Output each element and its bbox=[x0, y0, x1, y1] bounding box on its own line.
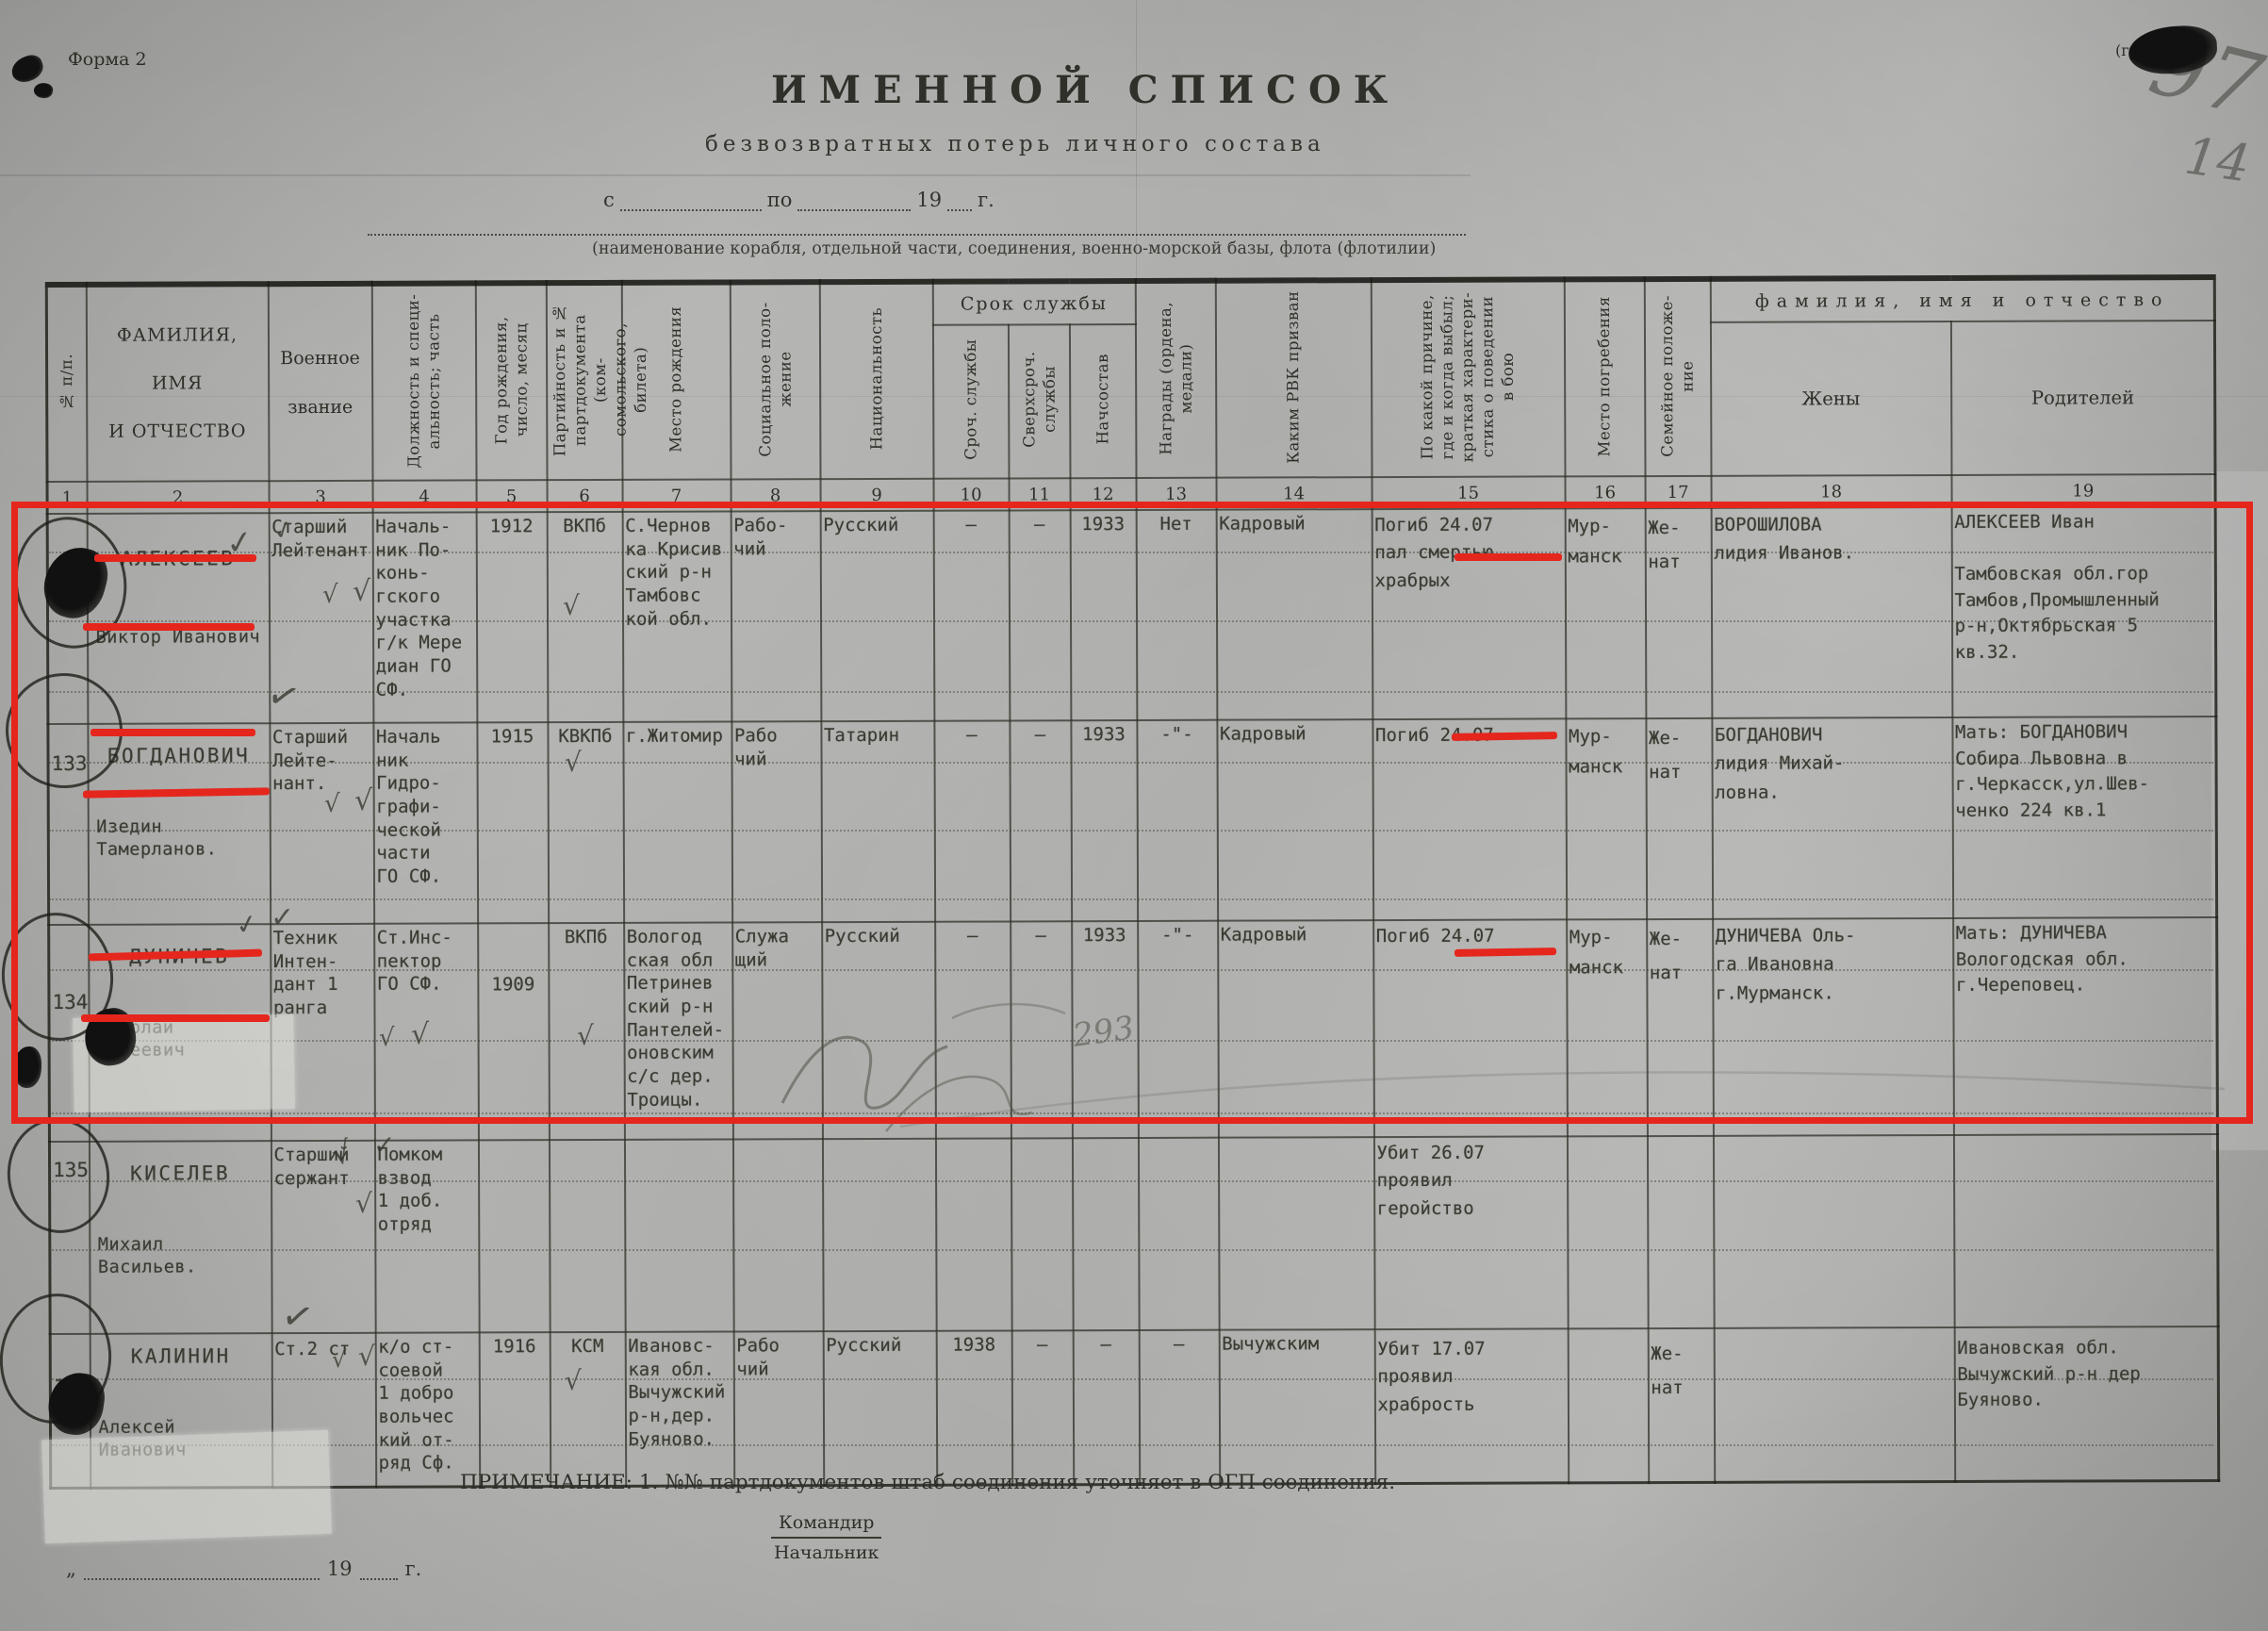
cell-wife: БОГДАНОВИЧ лидия Михай- ловна. bbox=[1712, 717, 1953, 919]
footer-year-blank bbox=[360, 1561, 398, 1580]
header-row-number: № п/п. bbox=[46, 285, 87, 482]
column-number: 3 bbox=[269, 481, 372, 513]
checkmark: √ bbox=[358, 1341, 375, 1372]
cell-burial bbox=[1567, 1136, 1648, 1328]
table-row: 136КАЛИНИНАлексей ИвановичСт.2 стк/о ст-… bbox=[50, 1326, 2219, 1488]
cell-name: КИСЕЛЕВМихаил Васильев. bbox=[89, 1141, 271, 1334]
cell-fate: Погиб 24.07 пал смертью храбрых bbox=[1372, 508, 1566, 719]
column-number: 2 bbox=[87, 481, 269, 514]
date-from-blank bbox=[620, 192, 762, 211]
cell-parents: Ивановская обл. Вычужский р-н дер Буянов… bbox=[1954, 1326, 2219, 1481]
cell-burial: Мур- манск bbox=[1566, 718, 1647, 919]
cell-nation: Русский bbox=[823, 1331, 937, 1485]
column-number: 15 bbox=[1372, 476, 1565, 509]
header-term-officer: Начсостав bbox=[1069, 324, 1136, 478]
cell-fate: Убит 26.07 проявил геройство bbox=[1373, 1136, 1568, 1329]
column-number: 5 bbox=[476, 480, 547, 512]
red-underline bbox=[81, 1014, 270, 1022]
header-social: Социальное поло- жение bbox=[730, 282, 820, 479]
cell-party: КВКПб bbox=[548, 722, 624, 923]
checkmark: √ bbox=[324, 790, 340, 818]
cell-family: Же- нат bbox=[1646, 718, 1713, 919]
footer-year-suffix: г. bbox=[405, 1557, 422, 1580]
ink-blot bbox=[13, 1046, 41, 1088]
cell-c10: 1938 bbox=[936, 1330, 1012, 1484]
unit-caption: (наименование корабля, отдельной части, … bbox=[592, 239, 1436, 258]
header-term-extended: Сверхсроч. службы bbox=[1008, 324, 1070, 478]
cell-fate: Погиб 24.07 bbox=[1372, 718, 1567, 920]
dotted-guide-line bbox=[49, 1444, 2213, 1446]
table-row: 135КИСЕЛЕВМихаил Васильев.Старший сержан… bbox=[49, 1134, 2218, 1334]
checkmark: √ bbox=[565, 747, 582, 778]
cell-wife: ВОРОШИЛОВА лидия Иванов. bbox=[1711, 507, 1952, 718]
unit-name-blank-line bbox=[368, 234, 1466, 236]
cell-year bbox=[478, 1140, 550, 1332]
surname: КИСЕЛЕВ bbox=[92, 1161, 269, 1187]
cell-fate: Убит 17.07 проявил храбрость bbox=[1374, 1328, 1569, 1483]
dotted-guide-line bbox=[49, 898, 2213, 900]
column-number: 12 bbox=[1070, 478, 1136, 510]
form-number-label: Форма 2 bbox=[68, 49, 147, 70]
cell-awards: – bbox=[1139, 1330, 1220, 1484]
column-number: 19 bbox=[1951, 474, 2215, 507]
given-name: Изедин Тамерланов. bbox=[90, 816, 267, 863]
signature-commander: Командир bbox=[771, 1512, 881, 1539]
dotted-guide-line bbox=[49, 830, 2213, 832]
checkmark: √ bbox=[354, 784, 372, 817]
column-number: 8 bbox=[731, 479, 820, 511]
column-number: 16 bbox=[1565, 476, 1645, 508]
red-underline bbox=[1454, 553, 1562, 561]
header-burial: Место погребения bbox=[1564, 279, 1645, 476]
cell-c12: 1933 bbox=[1071, 720, 1138, 921]
cell-birthplace bbox=[624, 1139, 733, 1331]
column-number: 11 bbox=[1009, 478, 1070, 510]
header-duty: Должность и специ- альность; часть bbox=[371, 283, 476, 480]
column-number: 6 bbox=[547, 480, 622, 512]
cell-awards bbox=[1138, 1138, 1219, 1330]
date-range-line: спо19г. bbox=[603, 189, 994, 211]
cell-burial bbox=[1568, 1328, 1649, 1482]
header-parents: Родителей bbox=[1950, 321, 2215, 475]
cell-social: Рабо чий bbox=[733, 1331, 824, 1485]
header-birth-year: Год рождения, число, месяц bbox=[475, 283, 547, 480]
footer-date-line: „19г. bbox=[66, 1557, 421, 1580]
cell-c10: – bbox=[933, 510, 1010, 720]
cell-family: Же- нат bbox=[1645, 508, 1712, 718]
cell-wife bbox=[1713, 1135, 1954, 1328]
header-wife: Жены bbox=[1710, 321, 1951, 476]
cell-awards: Нет bbox=[1136, 510, 1217, 720]
cell-parents: Мать: БОГДАНОВИЧ Собира Львовна в г.Черк… bbox=[1952, 717, 2217, 918]
column-number: 7 bbox=[622, 479, 731, 511]
column-number: 4 bbox=[372, 480, 476, 512]
date-year-label: 19 bbox=[916, 189, 942, 211]
document-page: Форма 2 (гриф) 97 14 ИМЕННОЙ СПИСОК безв… bbox=[0, 0, 2268, 1631]
document-title: ИМЕННОЙ СПИСОК bbox=[771, 68, 1082, 112]
cell-c11: – bbox=[1010, 720, 1072, 921]
cell-party bbox=[549, 1140, 625, 1332]
footnote: ПРИМЕЧАНИЕ: 1. №№ партдокументов штаб со… bbox=[460, 1471, 1395, 1494]
dotted-guide-line bbox=[49, 691, 2213, 693]
column-number: 1 bbox=[47, 482, 87, 514]
cell-social: Рабо чий bbox=[731, 721, 822, 922]
column-number: 10 bbox=[933, 478, 1009, 510]
header-family-status: Семейное положе- ние bbox=[1644, 279, 1711, 476]
checkmark: √ bbox=[411, 1018, 429, 1051]
cell-wife bbox=[1714, 1327, 1955, 1482]
cell-duty: к/о ст- соевой 1 добро вольчес кий от- р… bbox=[375, 1332, 480, 1486]
date-to-blank bbox=[797, 192, 911, 211]
surname: КАЛИНИН bbox=[92, 1343, 269, 1370]
paper-crease bbox=[0, 174, 1471, 176]
date-year-suffix: г. bbox=[978, 189, 994, 211]
checkmark: √ bbox=[322, 581, 338, 609]
date-from-label: с bbox=[603, 189, 615, 211]
checkmark: √ bbox=[355, 1188, 372, 1219]
cell-rvk bbox=[1218, 1137, 1374, 1330]
cell-awards: -"- bbox=[1137, 720, 1218, 921]
dotted-guide-line bbox=[49, 1180, 2213, 1182]
cell-rvk: Кадровый bbox=[1216, 509, 1372, 720]
date-year-blank bbox=[947, 192, 972, 211]
red-underline bbox=[83, 623, 255, 631]
cell-family: Же- нат bbox=[1648, 1328, 1715, 1482]
loss-list-table: № п/п. ФАМИЛИЯ, ИМЯ И ОТЧЕСТВО Военное з… bbox=[45, 274, 2220, 1490]
date-to-label: по bbox=[767, 189, 793, 211]
red-underline bbox=[90, 729, 255, 736]
checkmark: √ bbox=[332, 1346, 346, 1373]
cell-family bbox=[1647, 1136, 1714, 1328]
cell-birthplace: Ивановс- кая обл. Вычужский р-н,дер. Буя… bbox=[625, 1331, 734, 1485]
checkmark: √ bbox=[565, 1365, 582, 1396]
header-rank: Военное звание bbox=[268, 284, 372, 481]
cell-rank: Старший Лейте- нант. bbox=[270, 723, 374, 924]
cell-year: 1915 bbox=[477, 722, 549, 923]
cell-social: Рабо- чий bbox=[731, 511, 821, 721]
signature-chief: Начальник bbox=[771, 1539, 881, 1563]
checkmark: ✓ bbox=[373, 1129, 395, 1161]
cell-birthplace: г.Житомир bbox=[623, 721, 732, 922]
table-header: № п/п. ФАМИЛИЯ, ИМЯ И ОТЧЕСТВО Военное з… bbox=[46, 277, 2215, 514]
header-awards: Награды (ордена, медали) bbox=[1135, 281, 1216, 478]
cell-party: КСМ bbox=[550, 1332, 626, 1486]
faint-pencil-curve bbox=[896, 1037, 2234, 1141]
cell-c12: 1933 bbox=[1070, 510, 1137, 720]
cell-nation: Татарин bbox=[821, 721, 935, 922]
checkmark: √ bbox=[563, 590, 580, 621]
footer-open-quote: „ bbox=[66, 1557, 76, 1580]
cell-duty: Помком взвод 1 доб. отряд bbox=[374, 1140, 479, 1332]
column-number: 13 bbox=[1136, 478, 1216, 510]
cell-birthplace: Вологод ская обл Петринев ский р-н Панте… bbox=[624, 922, 733, 1139]
given-name: Михаил Васильев. bbox=[92, 1233, 269, 1279]
cell-nation: Русский bbox=[820, 511, 934, 721]
column-number: 9 bbox=[820, 479, 933, 511]
cell-c11: – bbox=[1009, 510, 1071, 720]
cell-c10 bbox=[935, 1138, 1011, 1330]
header-rvk: Каким РВК призван bbox=[1215, 280, 1372, 478]
cell-parents: АЛЕКСЕЕВ Иван Тамбовская обл.гор Тамбов,… bbox=[1951, 506, 2216, 717]
cell-parents bbox=[1953, 1134, 2218, 1327]
cell-c11: – bbox=[1011, 1330, 1074, 1484]
cell-year: 1916 bbox=[479, 1332, 551, 1486]
cell-social bbox=[732, 1139, 823, 1331]
dotted-guide-line bbox=[49, 620, 2213, 622]
header-service-term-group: Срок службы bbox=[932, 281, 1135, 325]
column-number: 18 bbox=[1711, 475, 1951, 508]
tape-patch bbox=[41, 1430, 332, 1544]
cell-duty: Началь ник Гидро- графи- ческой части ГО… bbox=[373, 722, 478, 923]
column-number: 14 bbox=[1216, 477, 1372, 510]
header-nationality: Национальность bbox=[819, 282, 933, 479]
document-subtitle: безвозвратных потерь личного состава bbox=[705, 132, 1158, 157]
dotted-guide-line bbox=[49, 552, 2213, 553]
dotted-guide-line bbox=[49, 762, 2213, 764]
red-underline bbox=[94, 554, 256, 562]
dotted-guide-line bbox=[49, 1249, 2213, 1251]
cell-year: 1909 bbox=[478, 923, 550, 1140]
dotted-guide-line bbox=[49, 969, 2213, 971]
checkmark: √ bbox=[379, 1024, 395, 1052]
table-row: 133БОГДАНОВИЧИзедин Тамерланов.Старший Л… bbox=[48, 717, 2217, 925]
signature-block: Командир Начальник bbox=[771, 1512, 881, 1563]
dotted-guide-line bbox=[49, 1378, 2213, 1380]
cell-rvk: Вычужским bbox=[1219, 1329, 1375, 1484]
column-number: 17 bbox=[1645, 476, 1711, 508]
footer-date-blank bbox=[84, 1561, 320, 1580]
cell-c10: – bbox=[934, 720, 1011, 921]
cell-c12 bbox=[1072, 1138, 1139, 1330]
checkmark: √ bbox=[353, 575, 370, 608]
header-cause: По какой причине, где и когда выбыл; кра… bbox=[1371, 279, 1565, 477]
checkmark: √ bbox=[577, 1020, 594, 1051]
header-name: ФАМИЛИЯ, ИМЯ И ОТЧЕСТВО bbox=[86, 284, 269, 482]
cell-rvk: Кадровый bbox=[1217, 719, 1373, 921]
header-party: Партийность и № партдокумента (ком- сомо… bbox=[546, 283, 622, 480]
cell-c11 bbox=[1011, 1138, 1073, 1330]
header-relatives-group: фамилия, имя и отчество bbox=[1710, 277, 2214, 322]
cell-burial: Мур- манск bbox=[1565, 508, 1646, 718]
handwritten-page-number-2: 14 bbox=[2181, 126, 2254, 194]
cell-nation bbox=[822, 1139, 936, 1331]
cell-c12: – bbox=[1073, 1330, 1140, 1484]
header-term-regular: Сроч. службы bbox=[932, 324, 1009, 478]
footer-year: 19 bbox=[327, 1557, 353, 1580]
checkmark: ✓ bbox=[271, 901, 294, 934]
